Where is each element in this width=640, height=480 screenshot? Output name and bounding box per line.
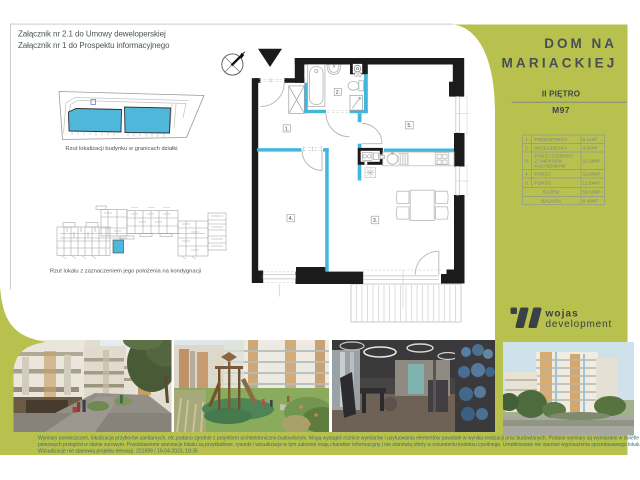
- svg-text:BALKON: BALKON: [541, 199, 561, 205]
- svg-text:22.98M²: 22.98M²: [583, 159, 601, 165]
- svg-text:6.40M²: 6.40M²: [583, 199, 598, 205]
- svg-text:PRZEDPOKÓJ: PRZEDPOKÓJ: [535, 136, 568, 143]
- svg-text:II PIĘTRO: II PIĘTRO: [542, 90, 580, 99]
- svg-text:59.63M²: 59.63M²: [583, 190, 601, 196]
- svg-text:4.: 4.: [289, 216, 293, 222]
- svg-text:POKÓJ: POKÓJ: [535, 171, 552, 178]
- svg-text:1.: 1.: [525, 137, 529, 143]
- svg-text:3.: 3.: [373, 218, 377, 224]
- svg-text:MARIACKIEJ: MARIACKIEJ: [501, 56, 617, 71]
- svg-text:Załącznik nr 1 do Prospektu in: Załącznik nr 1 do Prospektu informacyjne…: [18, 41, 170, 50]
- svg-text:Rzut lokalu z zaznaczeniem jeg: Rzut lokalu z zaznaczeniem jego położeni…: [50, 269, 201, 275]
- svg-text:4.: 4.: [525, 172, 529, 178]
- svg-text:5.: 5.: [407, 123, 411, 129]
- svg-text:Wymiary pomieszczeń, lokalizac: Wymiary pomieszczeń, lokalizacja przybor…: [38, 436, 639, 442]
- svg-text:4.05M²: 4.05M²: [583, 146, 598, 152]
- svg-text:KUCHENNYM: KUCHENNYM: [535, 164, 566, 170]
- svg-text:2.: 2.: [336, 90, 340, 96]
- svg-text:M97: M97: [552, 105, 570, 115]
- svg-text:WC/ŁAZIENKA: WC/ŁAZIENKA: [535, 146, 568, 152]
- svg-text:POKÓJ: POKÓJ: [535, 180, 552, 187]
- svg-text:2.: 2.: [525, 146, 529, 152]
- svg-text:1.: 1.: [285, 126, 289, 132]
- svg-text:Wizualizacje nie stanowią proj: Wizualizacje nie stanowią projektu elewa…: [38, 449, 198, 455]
- svg-text:Rzut lokalizacji budynku w gra: Rzut lokalizacji budynku w granicach dzi…: [65, 146, 177, 152]
- svg-text:pionowych przegród w stanie su: pionowych przegród w stanie surowym. Prz…: [38, 442, 640, 448]
- svg-text:5.: 5.: [525, 181, 529, 187]
- svg-text:POKÓJ DZIENNY: POKÓJ DZIENNY: [535, 153, 574, 160]
- svg-text:11.54M²: 11.54M²: [583, 181, 601, 187]
- svg-text:Załącznik nr 2.1 do Umowy dewe: Załącznik nr 2.1 do Umowy deweloperskiej: [18, 30, 166, 39]
- svg-text:DOM NA: DOM NA: [544, 36, 617, 51]
- svg-text:8.11M²: 8.11M²: [583, 137, 598, 143]
- svg-text:RAZEM: RAZEM: [543, 190, 560, 196]
- svg-text:3.: 3.: [525, 159, 529, 165]
- svg-text:12.95M²: 12.95M²: [583, 172, 601, 178]
- svg-text:development: development: [546, 319, 613, 330]
